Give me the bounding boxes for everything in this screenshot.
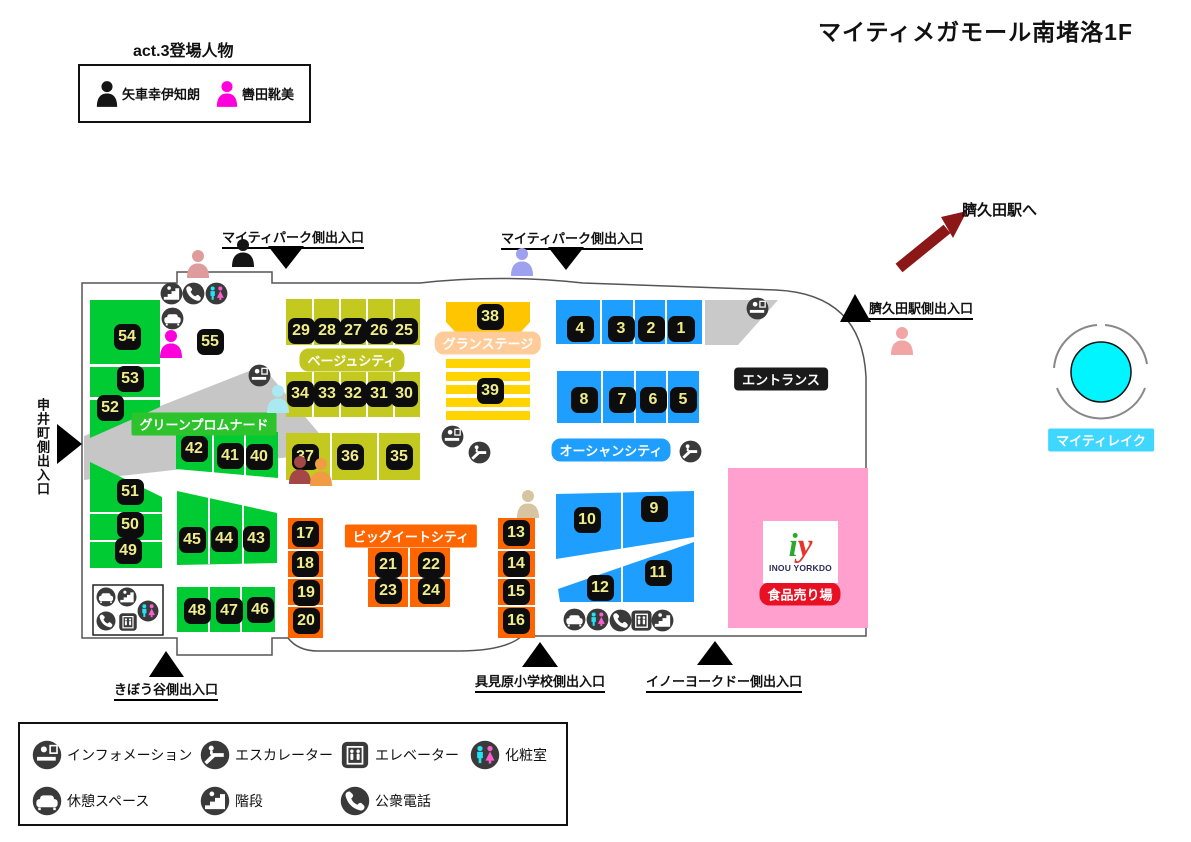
store-block-49: 49: [115, 538, 142, 564]
exit-triangle-marker: [548, 247, 584, 270]
store-block-51: 51: [117, 479, 144, 505]
store-block-38: 38: [477, 304, 504, 330]
store-block-3: 3: [608, 316, 635, 342]
logo-letter-i: i: [789, 528, 798, 564]
store-block-17: 17: [292, 521, 319, 547]
store-block-12: 12: [587, 575, 614, 601]
store-block-31: 31: [366, 381, 393, 407]
store-block-14: 14: [503, 551, 530, 577]
legend-label: 化粧室: [505, 745, 547, 765]
store-block-23: 23: [375, 578, 402, 604]
escalator-icon: [200, 740, 230, 770]
mighty-lake: [1071, 342, 1131, 402]
legend-label: インフォメーション: [67, 745, 192, 765]
store-block-26: 26: [366, 318, 393, 344]
yorkdo-iy-monogram: iy: [789, 531, 813, 561]
legend-item-escalator: エスカレーター: [200, 740, 333, 770]
exit-label: きぼう谷側出入口: [114, 679, 218, 701]
store-block-52: 52: [97, 395, 124, 421]
person-icon: [515, 489, 541, 519]
area-label: エントランス: [734, 368, 828, 391]
restroom-icon: [137, 600, 159, 622]
legend-item-restroom: 化粧室: [470, 740, 547, 770]
store-block-47: 47: [216, 598, 243, 624]
map-legend-box: インフォメーション エスカレーター エレベーター 化粧室 休憩スペース 階段 公…: [18, 722, 568, 826]
legend-label: 階段: [235, 791, 263, 811]
rest-icon: [161, 307, 184, 330]
store-block-40: 40: [246, 444, 273, 470]
area-shape-gold2: [446, 411, 530, 420]
store-block-1: 1: [668, 316, 695, 342]
stairs-icon: [200, 786, 230, 816]
yorkdo-logo-text: INOU YORKDO: [769, 563, 832, 573]
area-label: ベージュシティ: [299, 349, 404, 372]
restroom-icon: [470, 740, 500, 770]
store-block-55: 55: [197, 329, 224, 355]
phone-icon: [182, 282, 205, 305]
store-block-7: 7: [609, 387, 636, 413]
stairs-icon: [117, 587, 137, 607]
exit-label: 申井町側出入口: [33, 398, 52, 497]
escalator-icon: [679, 440, 702, 463]
store-block-54: 54: [114, 324, 141, 350]
store-block-10: 10: [574, 507, 601, 533]
store-block-25: 25: [391, 318, 418, 344]
store-block-18: 18: [292, 551, 319, 577]
legend-item-stairs: 階段: [200, 786, 263, 816]
area-label: グランステージ: [435, 332, 541, 355]
store-block-13: 13: [503, 520, 530, 546]
restroom-icon: [586, 608, 609, 631]
store-block-33: 33: [314, 381, 341, 407]
phone-icon: [609, 609, 632, 632]
character-marker: [515, 489, 541, 519]
store-block-27: 27: [340, 318, 367, 344]
store-block-22: 22: [418, 552, 445, 578]
elevator-icon: [340, 740, 370, 770]
area-label: マイティレイク: [1048, 429, 1154, 452]
store-block-9: 9: [641, 496, 668, 522]
elevator-icon: [630, 609, 653, 632]
person-icon: [308, 457, 334, 487]
area-label: オーシャンシティ: [552, 439, 671, 462]
phone-icon: [340, 786, 370, 816]
store-block-2: 2: [638, 316, 665, 342]
character-marker: [265, 384, 291, 414]
person-icon: [889, 326, 915, 356]
exit-triangle-marker: [840, 294, 871, 322]
store-block-35: 35: [386, 444, 413, 470]
stairs-icon: [160, 282, 183, 305]
store-block-29: 29: [288, 318, 315, 344]
store-block-19: 19: [293, 580, 320, 606]
stairs-icon: [651, 609, 674, 632]
store-block-30: 30: [391, 381, 418, 407]
store-block-32: 32: [340, 381, 367, 407]
exit-triangle-marker: [57, 424, 82, 464]
station-direction-note: 臍久田駅へ: [962, 199, 1037, 220]
exit-label: 臍久田駅側出入口: [869, 298, 973, 320]
area-label: 食品売り場: [759, 583, 840, 606]
legend-label: エレベーター: [375, 745, 459, 765]
rest-icon: [563, 608, 586, 631]
exit-triangle-marker: [697, 641, 733, 665]
store-block-43: 43: [243, 526, 270, 552]
escalator-icon: [468, 441, 491, 464]
elevator-icon: [118, 612, 138, 632]
phone-icon: [96, 611, 116, 631]
exit-triangle-marker: [522, 642, 558, 667]
info-icon: [441, 425, 464, 448]
person-icon: [509, 247, 535, 277]
store-block-6: 6: [640, 387, 667, 413]
inou-yorkdo-logo: iy INOU YORKDO: [763, 521, 838, 583]
area-label: ビッグイートシティ: [345, 525, 477, 548]
character-marker: [158, 329, 184, 359]
store-block-46: 46: [247, 597, 274, 623]
store-block-48: 48: [184, 598, 211, 624]
store-block-45: 45: [179, 527, 206, 553]
store-block-39: 39: [477, 378, 504, 404]
exit-label: 具見原小学校側出入口: [475, 671, 605, 693]
person-icon: [158, 329, 184, 359]
store-block-21: 21: [375, 552, 402, 578]
store-block-44: 44: [211, 526, 238, 552]
legend-label: 公衆電話: [375, 791, 431, 811]
store-block-24: 24: [418, 578, 445, 604]
store-block-50: 50: [117, 512, 144, 538]
rest-icon: [32, 786, 62, 816]
exit-triangle-marker: [268, 246, 304, 269]
store-block-5: 5: [670, 387, 697, 413]
mall-floor-map-page: マイティメガモール南堵洛1F act.3登場人物 矢車幸伊知朗 轡田靴美 123…: [0, 0, 1191, 842]
area-shape-gold2: [446, 359, 530, 368]
area-label: グリーンプロムナード: [132, 413, 277, 436]
store-block-36: 36: [337, 444, 364, 470]
store-block-15: 15: [503, 579, 530, 605]
person-icon: [185, 249, 211, 279]
legend-label: エスカレーター: [235, 745, 333, 765]
person-icon: [265, 384, 291, 414]
legend-item-phone: 公衆電話: [340, 786, 431, 816]
character-marker: [230, 238, 256, 268]
store-block-8: 8: [571, 387, 598, 413]
legend-item-elevator: エレベーター: [340, 740, 459, 770]
exit-label: イノーヨークドー側出入口: [646, 671, 802, 693]
character-marker: [889, 326, 915, 356]
station-arrow-shaft: [899, 229, 947, 268]
info-icon: [746, 297, 769, 320]
info-icon: [32, 740, 62, 770]
store-block-53: 53: [117, 366, 144, 392]
character-marker: [509, 247, 535, 277]
store-block-41: 41: [217, 443, 244, 469]
store-block-20: 20: [293, 608, 320, 634]
store-block-11: 11: [645, 560, 672, 586]
store-block-16: 16: [503, 608, 530, 634]
store-block-42: 42: [181, 436, 208, 462]
logo-letter-y: y: [798, 528, 813, 564]
store-block-28: 28: [314, 318, 341, 344]
rest-icon: [96, 587, 116, 607]
character-marker: [308, 457, 334, 487]
store-block-4: 4: [567, 316, 594, 342]
legend-label: 休憩スペース: [67, 791, 149, 811]
legend-item-info: インフォメーション: [32, 740, 192, 770]
legend-item-rest: 休憩スペース: [32, 786, 149, 816]
character-marker: [185, 249, 211, 279]
person-icon: [230, 238, 256, 268]
restroom-icon: [205, 282, 228, 305]
